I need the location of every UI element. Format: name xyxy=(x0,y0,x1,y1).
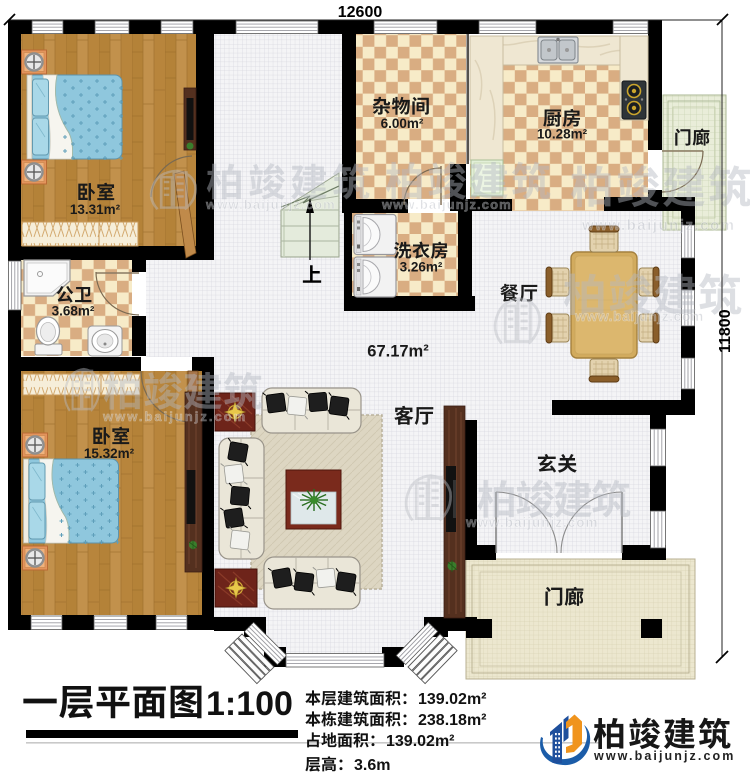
svg-text:13.31m²: 13.31m² xyxy=(70,202,121,217)
svg-text:238.18m²: 238.18m² xyxy=(418,712,487,729)
svg-text:10.28m²: 10.28m² xyxy=(537,127,588,142)
svg-text:12600: 12600 xyxy=(338,4,383,21)
svg-text:www.baijunjz.com: www.baijunjz.com xyxy=(205,197,336,212)
svg-text:15.32m²: 15.32m² xyxy=(84,446,135,461)
svg-text:67.17m²: 67.17m² xyxy=(367,343,429,361)
svg-text:6.00m²: 6.00m² xyxy=(381,116,424,131)
svg-text:139.02m²: 139.02m² xyxy=(386,733,455,750)
svg-text:www.baijunjz.com: www.baijunjz.com xyxy=(102,409,247,424)
svg-text:3.68m²: 3.68m² xyxy=(52,304,95,319)
svg-text:3.26m²: 3.26m² xyxy=(400,260,443,275)
svg-text:3.6m: 3.6m xyxy=(354,757,390,774)
svg-text:11800: 11800 xyxy=(717,309,734,353)
svg-text:www.baijunjz.com: www.baijunjz.com xyxy=(581,217,735,234)
svg-text:www.baijunjz.com: www.baijunjz.com xyxy=(593,749,735,763)
svg-text:139.02m²: 139.02m² xyxy=(418,691,487,708)
svg-text:www.baijunjz.com: www.baijunjz.com xyxy=(574,308,704,324)
svg-text:www.baijunjz.com: www.baijunjz.com xyxy=(381,197,512,212)
svg-text:www.baijunjz.com: www.baijunjz.com xyxy=(465,515,599,530)
svg-text:1:100: 1:100 xyxy=(206,685,293,723)
